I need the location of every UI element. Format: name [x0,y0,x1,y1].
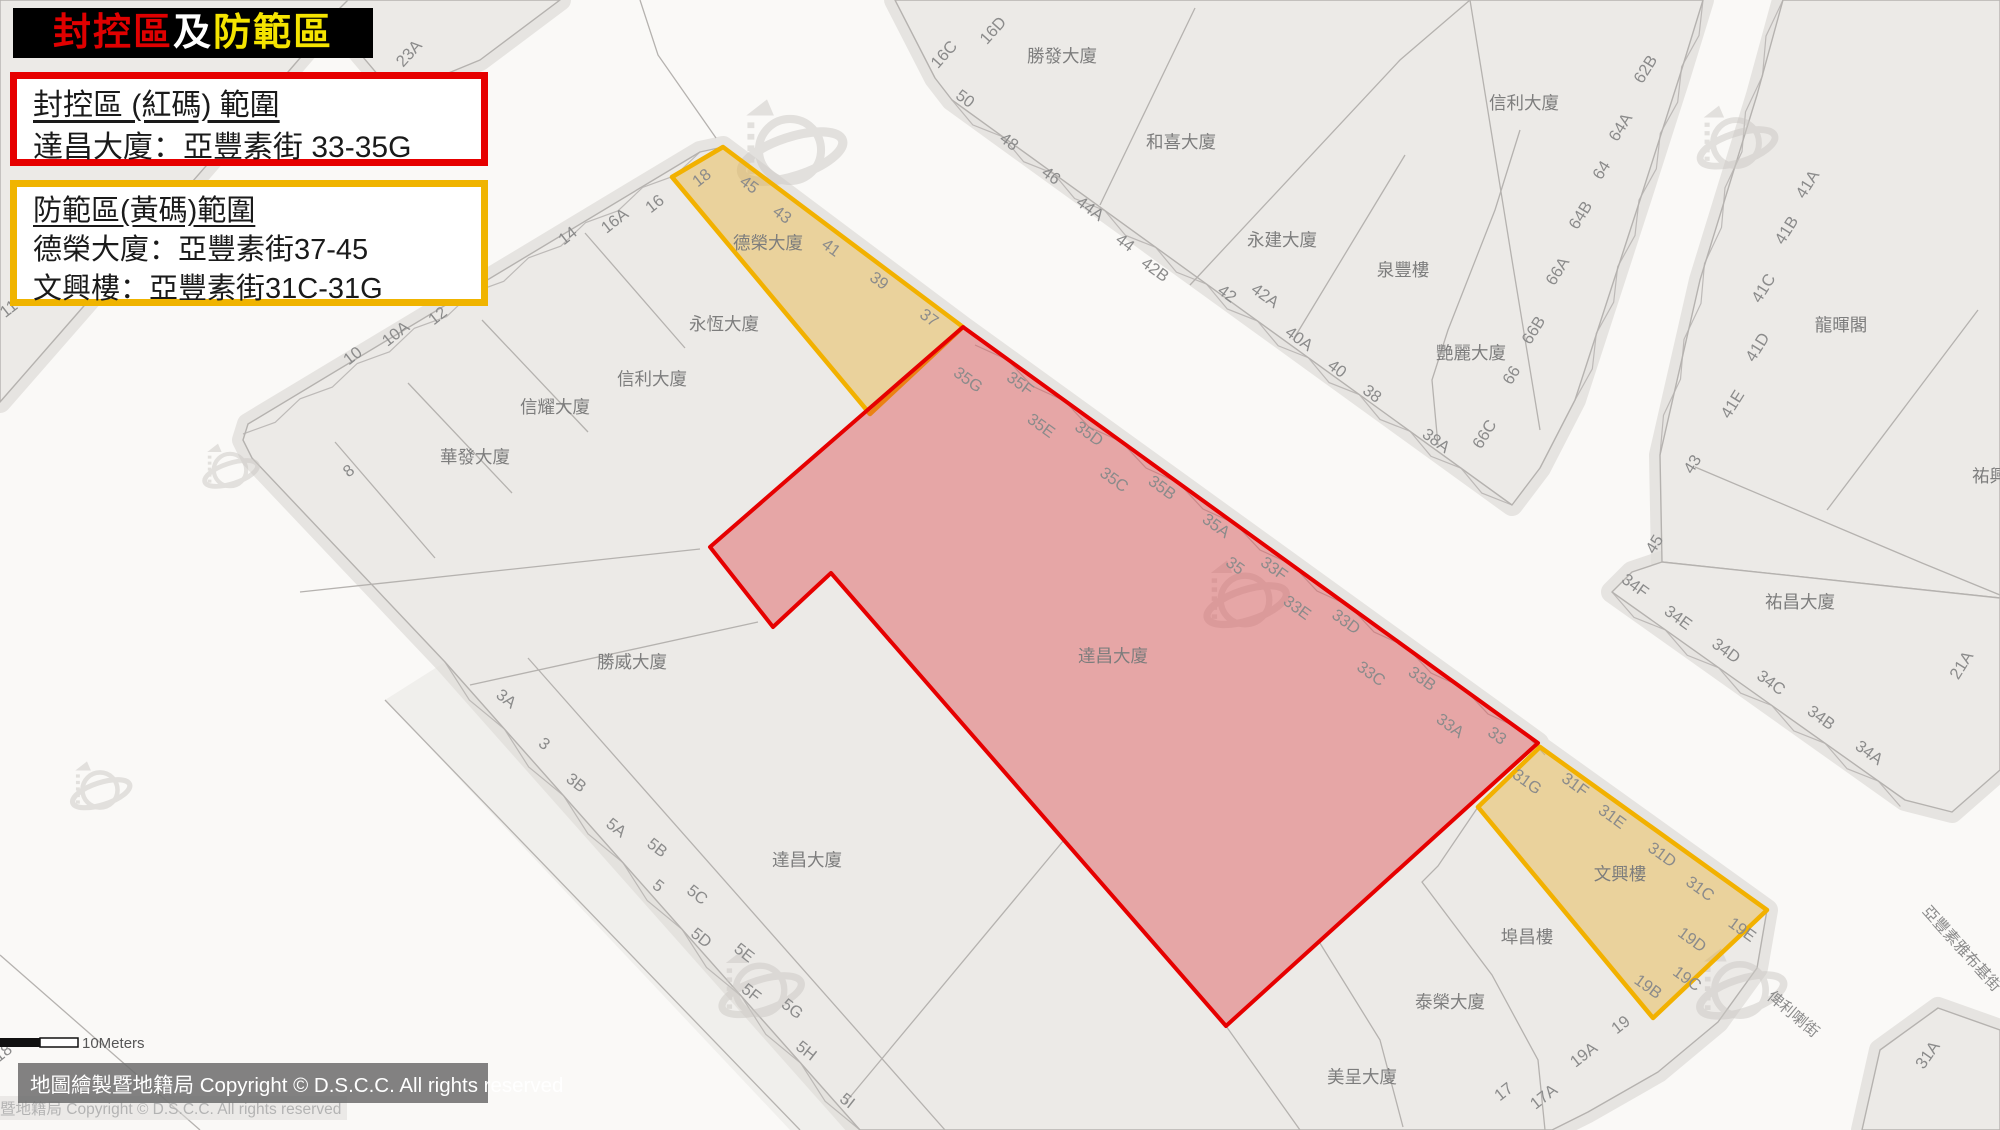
scalebar-segment-light [40,1038,78,1047]
cadastral-map-canvas[interactable]: 50484644A4442B4242A40A403838A35G35F35E35… [0,0,2000,1130]
building-name-label: 祐興大廈 [1972,466,2000,486]
title-and-part: 及 [173,14,213,52]
map-screenshot: 50484644A4442B4242A40A403838A35G35F35E35… [0,0,2000,1130]
legend-yellow-line1: 德榮大廈：亞豐素街37-45 [33,231,465,270]
building-name-label: 華發大廈 [440,447,510,467]
street-name-label: 亞豐素雅布基街 [1919,902,2000,995]
building-name-label: 信耀大廈 [520,397,590,417]
scalebar-label: 10Meters [82,1035,145,1052]
block-east-upper [1660,0,2000,598]
legend-yellow-zone: 防範區(黃碼)範圍 德榮大廈：亞豐素街37-45 文興樓：亞豐素街31C-31G [10,180,488,306]
building-name-label: 達昌大廈 [772,850,842,870]
building-name-label: 信利大廈 [1489,93,1559,113]
title-yellow-part: 防範區 [213,14,333,52]
building-name-label: 文興樓 [1594,864,1647,884]
building-name-label: 信利大廈 [617,369,687,389]
building-name-label: 德榮大廈 [733,233,803,253]
building-name-label: 勝發大廈 [1027,46,1097,66]
building-name-label: 美呈大廈 [1327,1067,1397,1087]
building-name-label: 達昌大廈 [1078,646,1148,666]
building-name-label: 泰榮大廈 [1415,992,1485,1012]
building-name-label: 勝威大廈 [597,652,667,672]
dscc-watermark-logo [69,761,133,813]
building-name-label: 祐昌大廈 [1765,592,1835,612]
scalebar-segment-dark [0,1038,40,1047]
building-name-label: 泉豐樓 [1377,260,1430,280]
copyright-bar: 地圖繪製暨地籍局 Copyright © D.S.C.C. All rights… [18,1063,488,1103]
legend-yellow-line2: 文興樓：亞豐素街31C-31G [33,270,465,309]
building-name-label: 艷麗大廈 [1436,343,1506,363]
street-name-label: 俾利喇街 [1764,987,1823,1041]
legend-yellow-heading: 防範區(黃碼)範圍 [33,192,465,231]
legend-red-zone: 封控區 (紅碼) 範圍 達昌大廈：亞豐素街 33-35G [10,72,488,166]
building-name-label: 和喜大廈 [1146,132,1216,152]
legend-red-line: 達昌大廈：亞豐素街 33-35G [33,127,465,169]
building-name-label: 龍暉閣 [1815,315,1868,335]
legend-red-heading: 封控區 (紅碼) 範圍 [33,85,465,127]
page-title: 封控區及防範區 [13,8,373,58]
building-name-label: 永恆大廈 [689,314,759,334]
building-name-label: 永建大廈 [1247,230,1317,250]
title-red-part: 封控區 [53,14,173,52]
block-corner-31a [1862,1008,2000,1130]
parcel-line [640,0,716,138]
building-name-label: 埠昌樓 [1501,927,1554,947]
